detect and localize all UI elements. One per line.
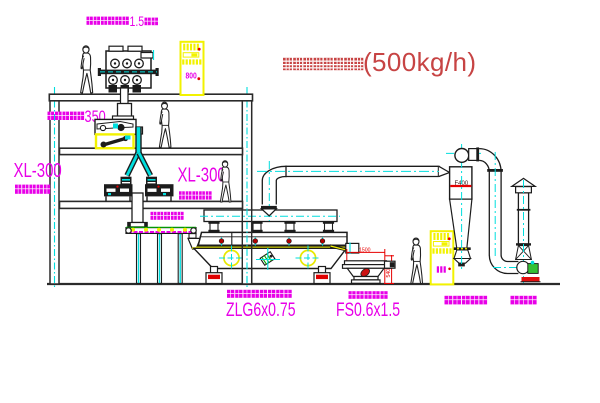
svg-text:800: 800 (186, 71, 197, 81)
svg-text:1.5: 1.5 (130, 13, 145, 29)
svg-text:1500: 1500 (359, 248, 371, 254)
svg-text:ZLG6x0.75: ZLG6x0.75 (226, 299, 296, 321)
svg-text:XL-300: XL-300 (178, 163, 226, 186)
svg-text:540: 540 (386, 269, 392, 278)
svg-text:(500kg/h): (500kg/h) (363, 47, 476, 77)
svg-text:XL-300: XL-300 (14, 159, 62, 182)
svg-text:FS0.6x1.5: FS0.6x1.5 (336, 299, 400, 321)
